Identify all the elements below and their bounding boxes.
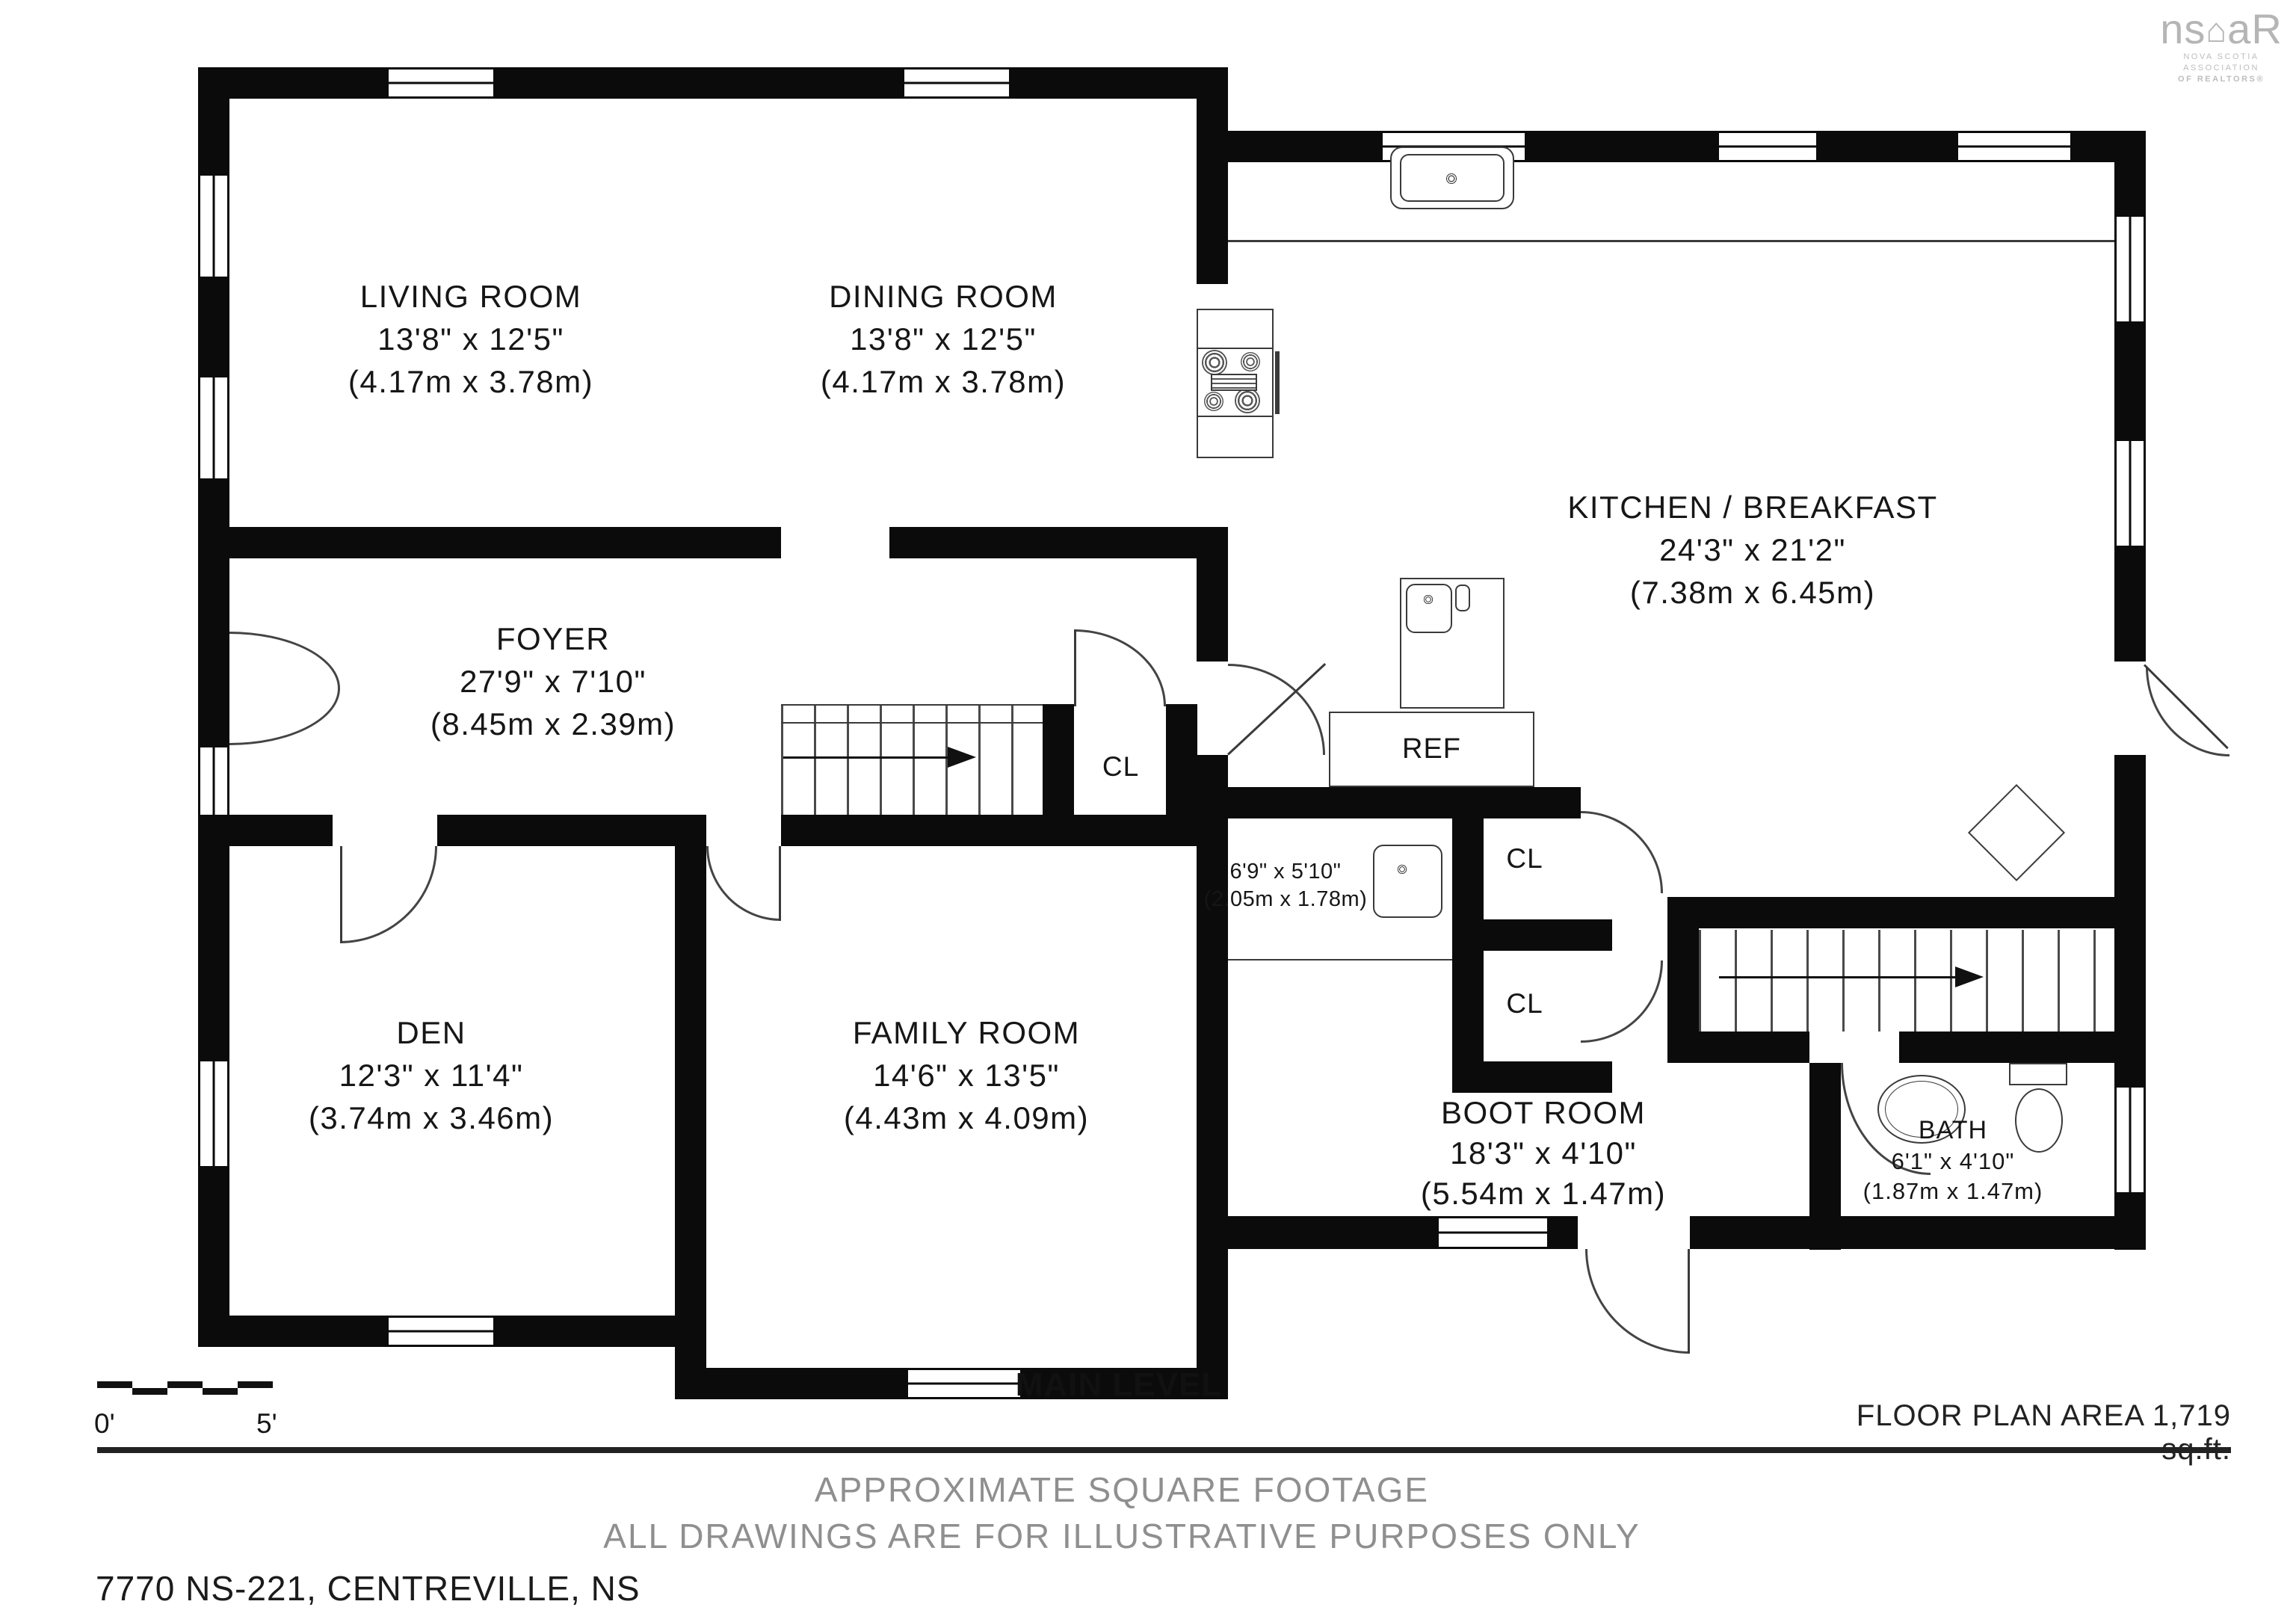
wall <box>198 527 781 558</box>
stair-direction-line <box>783 756 951 759</box>
window <box>389 67 493 99</box>
divider <box>97 1447 2231 1453</box>
window <box>2114 217 2146 321</box>
window <box>1719 131 1816 162</box>
room-dim-imperial: 14'6" x 13'5" <box>742 1054 1191 1097</box>
door-leaf <box>779 846 781 921</box>
logo-text-right: aR <box>2227 5 2283 52</box>
staircase-secondary <box>1699 930 2114 1032</box>
window <box>2114 1088 2146 1192</box>
wall <box>1197 67 1228 284</box>
logo-text-left: ns <box>2160 5 2206 52</box>
wall <box>1667 1032 1809 1063</box>
toilet-tank <box>2009 1063 2067 1085</box>
wall <box>1667 928 1699 1033</box>
faucet-icon <box>1423 594 1434 605</box>
fridge: REF <box>1329 712 1534 787</box>
nsar-logo: ns⌂aR NOVA SCOTIA ASSOCIATION OF REALTOR… <box>2147 7 2296 85</box>
wall <box>1452 1061 1612 1093</box>
logo-tagline-2: OF REALTORS® <box>2147 74 2296 85</box>
room-dim-imperial: 24'3" x 21'2" <box>1491 528 2014 571</box>
wall <box>889 527 1228 558</box>
wall <box>1690 1216 2146 1249</box>
address: 7770 NS-221, CENTREVILLE, NS <box>96 1568 993 1609</box>
window <box>198 176 229 277</box>
wall <box>1452 919 1612 951</box>
room-label-boot: BOOT ROOM 18'3" x 4'10" (5.54m x 1.47m) <box>1282 1093 1805 1213</box>
wall <box>2114 131 2146 662</box>
room-dim-imperial: 18'3" x 4'10" <box>1282 1133 1805 1174</box>
stove-line <box>1197 348 1274 349</box>
stair-edge <box>781 704 1043 706</box>
wall <box>1899 1032 2146 1063</box>
room-name: DEN <box>207 1011 655 1054</box>
counter-edge <box>1228 240 2114 242</box>
logo-tagline-1: NOVA SCOTIA ASSOCIATION <box>2147 52 2296 74</box>
room-label-family: FAMILY ROOM 14'6" x 13'5" (4.43m x 4.09m… <box>742 1011 1191 1139</box>
door-arc <box>340 846 437 943</box>
scale-start-label: 0' <box>94 1408 115 1440</box>
wall <box>1197 527 1228 662</box>
window <box>198 747 229 815</box>
footer-line2: ALL DRAWINGS ARE FOR ILLUSTRATIVE PURPOS… <box>251 1516 1993 1556</box>
wall <box>1228 787 1581 818</box>
burner-icon <box>1204 392 1223 411</box>
room-dim-imperial: 12'3" x 11'4" <box>207 1054 655 1097</box>
room-edge <box>1228 959 1452 960</box>
closet-label: CL <box>1476 988 1573 1020</box>
window <box>1958 131 2070 162</box>
staircase-main <box>781 704 1043 815</box>
door-arc <box>706 846 781 921</box>
window <box>1439 1216 1547 1249</box>
diamond-decor <box>1968 784 2065 881</box>
room-dim-imperial: 13'8" x 12'5" <box>247 318 695 360</box>
room-dim-metric: (7.38m x 6.45m) <box>1491 571 2014 614</box>
scale-segment <box>97 1381 132 1388</box>
door-arc <box>1581 960 1663 1043</box>
door-arc <box>1074 629 1166 706</box>
stair-arrow <box>948 747 976 768</box>
level-title: MAIN LEVEL <box>962 1366 1276 1404</box>
burner-icon <box>1235 388 1260 413</box>
door-leaf <box>1688 1249 1690 1354</box>
house-icon: ⌂ <box>2206 10 2227 49</box>
room-name: FOYER <box>329 617 777 660</box>
room-dim-imperial: 13'8" x 12'5" <box>719 318 1167 360</box>
door-arc <box>1581 811 1663 893</box>
door-arc <box>1585 1249 1690 1354</box>
floor-plan: REF LIVING ROOM 13'8" x 12'5" (4.17m x 3… <box>0 0 2296 1622</box>
room-dim-metric: (3.74m x 3.46m) <box>207 1097 655 1139</box>
scale-segment <box>203 1388 238 1395</box>
room-dim-metric: (4.17m x 3.78m) <box>719 360 1167 403</box>
scale-end-label: 5' <box>256 1408 277 1440</box>
room-label-dining: DINING ROOM 13'8" x 12'5" (4.17m x 3.78m… <box>719 275 1167 403</box>
window <box>198 377 229 478</box>
wall <box>437 815 706 846</box>
stove-line <box>1197 416 1274 417</box>
room-label-living: LIVING ROOM 13'8" x 12'5" (4.17m x 3.78m… <box>247 275 695 403</box>
floor-area-label: FLOOR PLAN AREA 1,719 sq.ft. <box>1783 1399 2231 1467</box>
wall <box>781 815 1228 846</box>
room-label-kitchen: KITCHEN / BREAKFAST 24'3" x 21'2" (7.38m… <box>1491 486 2014 614</box>
scale-bar <box>97 1381 273 1395</box>
scale-segment <box>167 1381 203 1388</box>
faucet-icon <box>1397 864 1407 875</box>
scale-segment <box>238 1381 273 1388</box>
window <box>2114 441 2146 546</box>
room-name: FAMILY ROOM <box>742 1011 1191 1054</box>
wall <box>198 815 333 846</box>
wall <box>675 846 706 1399</box>
door-arc <box>229 632 340 688</box>
window <box>904 67 1009 99</box>
burner-icon <box>1202 350 1227 375</box>
room-name: KITCHEN / BREAKFAST <box>1491 486 2014 528</box>
room-name: BOOT ROOM <box>1282 1093 1805 1133</box>
room-dim-metric: (4.17m x 3.78m) <box>247 360 695 403</box>
stair-edge <box>781 722 1043 724</box>
room-name: LIVING ROOM <box>247 275 695 318</box>
footer-line1: APPROXIMATE SQUARE FOOTAGE <box>251 1470 1993 1510</box>
stair-arrow <box>1955 966 1984 987</box>
room-dim-metric: (5.54m x 1.47m) <box>1282 1174 1805 1214</box>
room-dim-metric: (1.87m x 1.47m) <box>1841 1177 2065 1206</box>
wall <box>1166 704 1197 846</box>
room-label-foyer: FOYER 27'9" x 7'10" (8.45m x 2.39m) <box>329 617 777 745</box>
room-name: DINING ROOM <box>719 275 1167 318</box>
door-arc <box>229 688 340 745</box>
room-dim-imperial: 6'1" x 4'10" <box>1841 1147 2065 1177</box>
scale-segment <box>132 1388 167 1395</box>
room-label-bath: BATH 6'1" x 4'10" (1.87m x 1.47m) <box>1841 1114 2065 1207</box>
island-sink <box>1406 584 1452 633</box>
room-dim-metric: (4.43m x 4.09m) <box>742 1097 1191 1139</box>
wall <box>198 67 1228 99</box>
closet-label: CL <box>1476 843 1573 875</box>
island-drainboard <box>1455 585 1470 611</box>
stove-vent <box>1211 374 1257 391</box>
wall <box>1043 704 1074 846</box>
faucet-icon <box>1445 173 1457 185</box>
room-dim-imperial: 27'9" x 7'10" <box>329 660 777 703</box>
burner-icon <box>1241 352 1260 371</box>
closet-label: CL <box>1074 751 1167 783</box>
room-dim-metric: (2.05m x 1.78m) <box>1173 886 1398 913</box>
logo-wordmark: ns⌂aR <box>2147 7 2296 52</box>
room-dim-imperial: 6'9" x 5'10" <box>1173 858 1398 886</box>
room-label-utility: 6'9" x 5'10" (2.05m x 1.78m) <box>1173 858 1398 913</box>
stair-direction-line <box>1719 976 1958 978</box>
room-label-den: DEN 12'3" x 11'4" (3.74m x 3.46m) <box>207 1011 655 1139</box>
door-leaf <box>1074 629 1076 706</box>
room-dim-metric: (8.45m x 2.39m) <box>329 703 777 745</box>
window <box>389 1316 493 1347</box>
oven-handle <box>1275 351 1280 414</box>
fridge-label: REF <box>1402 733 1461 765</box>
wall <box>1667 897 2146 928</box>
door-leaf <box>340 846 342 943</box>
wall <box>1197 755 1228 1399</box>
room-name: BATH <box>1841 1114 2065 1147</box>
